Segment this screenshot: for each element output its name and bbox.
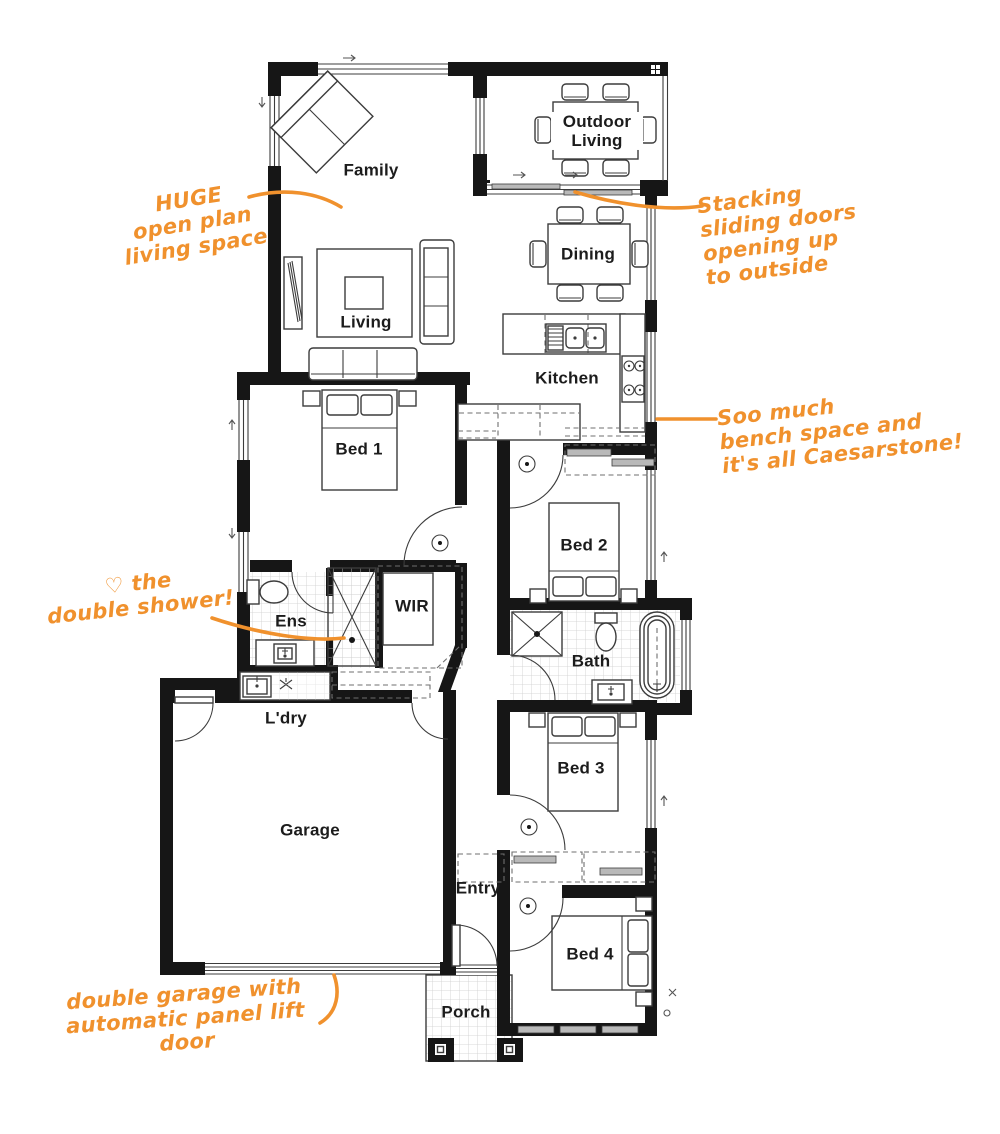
room-label-outdoor-living: Outdoor Living bbox=[551, 112, 643, 150]
bath-vanity bbox=[592, 680, 632, 704]
wir-shelving bbox=[378, 566, 462, 668]
laundry-bench bbox=[240, 672, 330, 700]
room-label-garage: Garage bbox=[280, 820, 340, 839]
tv-unit bbox=[284, 257, 302, 329]
room-label-bed1: Bed 1 bbox=[335, 439, 382, 458]
room-label-entry: Entry bbox=[456, 878, 500, 897]
bathtub bbox=[640, 612, 674, 698]
room-label-family: Family bbox=[343, 160, 398, 179]
room-label-wir: WIR bbox=[395, 596, 429, 615]
room-label-dining: Dining bbox=[557, 244, 619, 263]
room-label-bath: Bath bbox=[572, 651, 611, 670]
room-label-kitchen: Kitchen bbox=[531, 368, 603, 387]
family-corner-sofa bbox=[271, 71, 373, 173]
room-label-living: Living bbox=[340, 312, 391, 331]
ens-vanity bbox=[256, 640, 314, 666]
floor-plan: Family Outdoor Living Dining Kitchen Liv… bbox=[0, 0, 1000, 1134]
toilet-icon bbox=[595, 613, 617, 651]
room-label-bed4: Bed 4 bbox=[566, 944, 613, 963]
room-label-porch: Porch bbox=[441, 1002, 490, 1021]
ens-shower bbox=[328, 568, 376, 666]
toilet-icon bbox=[247, 580, 288, 604]
sofa-right bbox=[420, 240, 454, 344]
room-label-ens: Ens bbox=[275, 611, 307, 630]
room-label-ldry: L'dry bbox=[265, 708, 307, 727]
bath-shower bbox=[512, 612, 562, 656]
floor-plan-drawing bbox=[0, 0, 1000, 1134]
room-label-bed3: Bed 3 bbox=[557, 758, 604, 777]
room-label-bed2: Bed 2 bbox=[560, 535, 607, 554]
sofa-bottom bbox=[309, 348, 417, 380]
living-furniture bbox=[284, 240, 454, 380]
